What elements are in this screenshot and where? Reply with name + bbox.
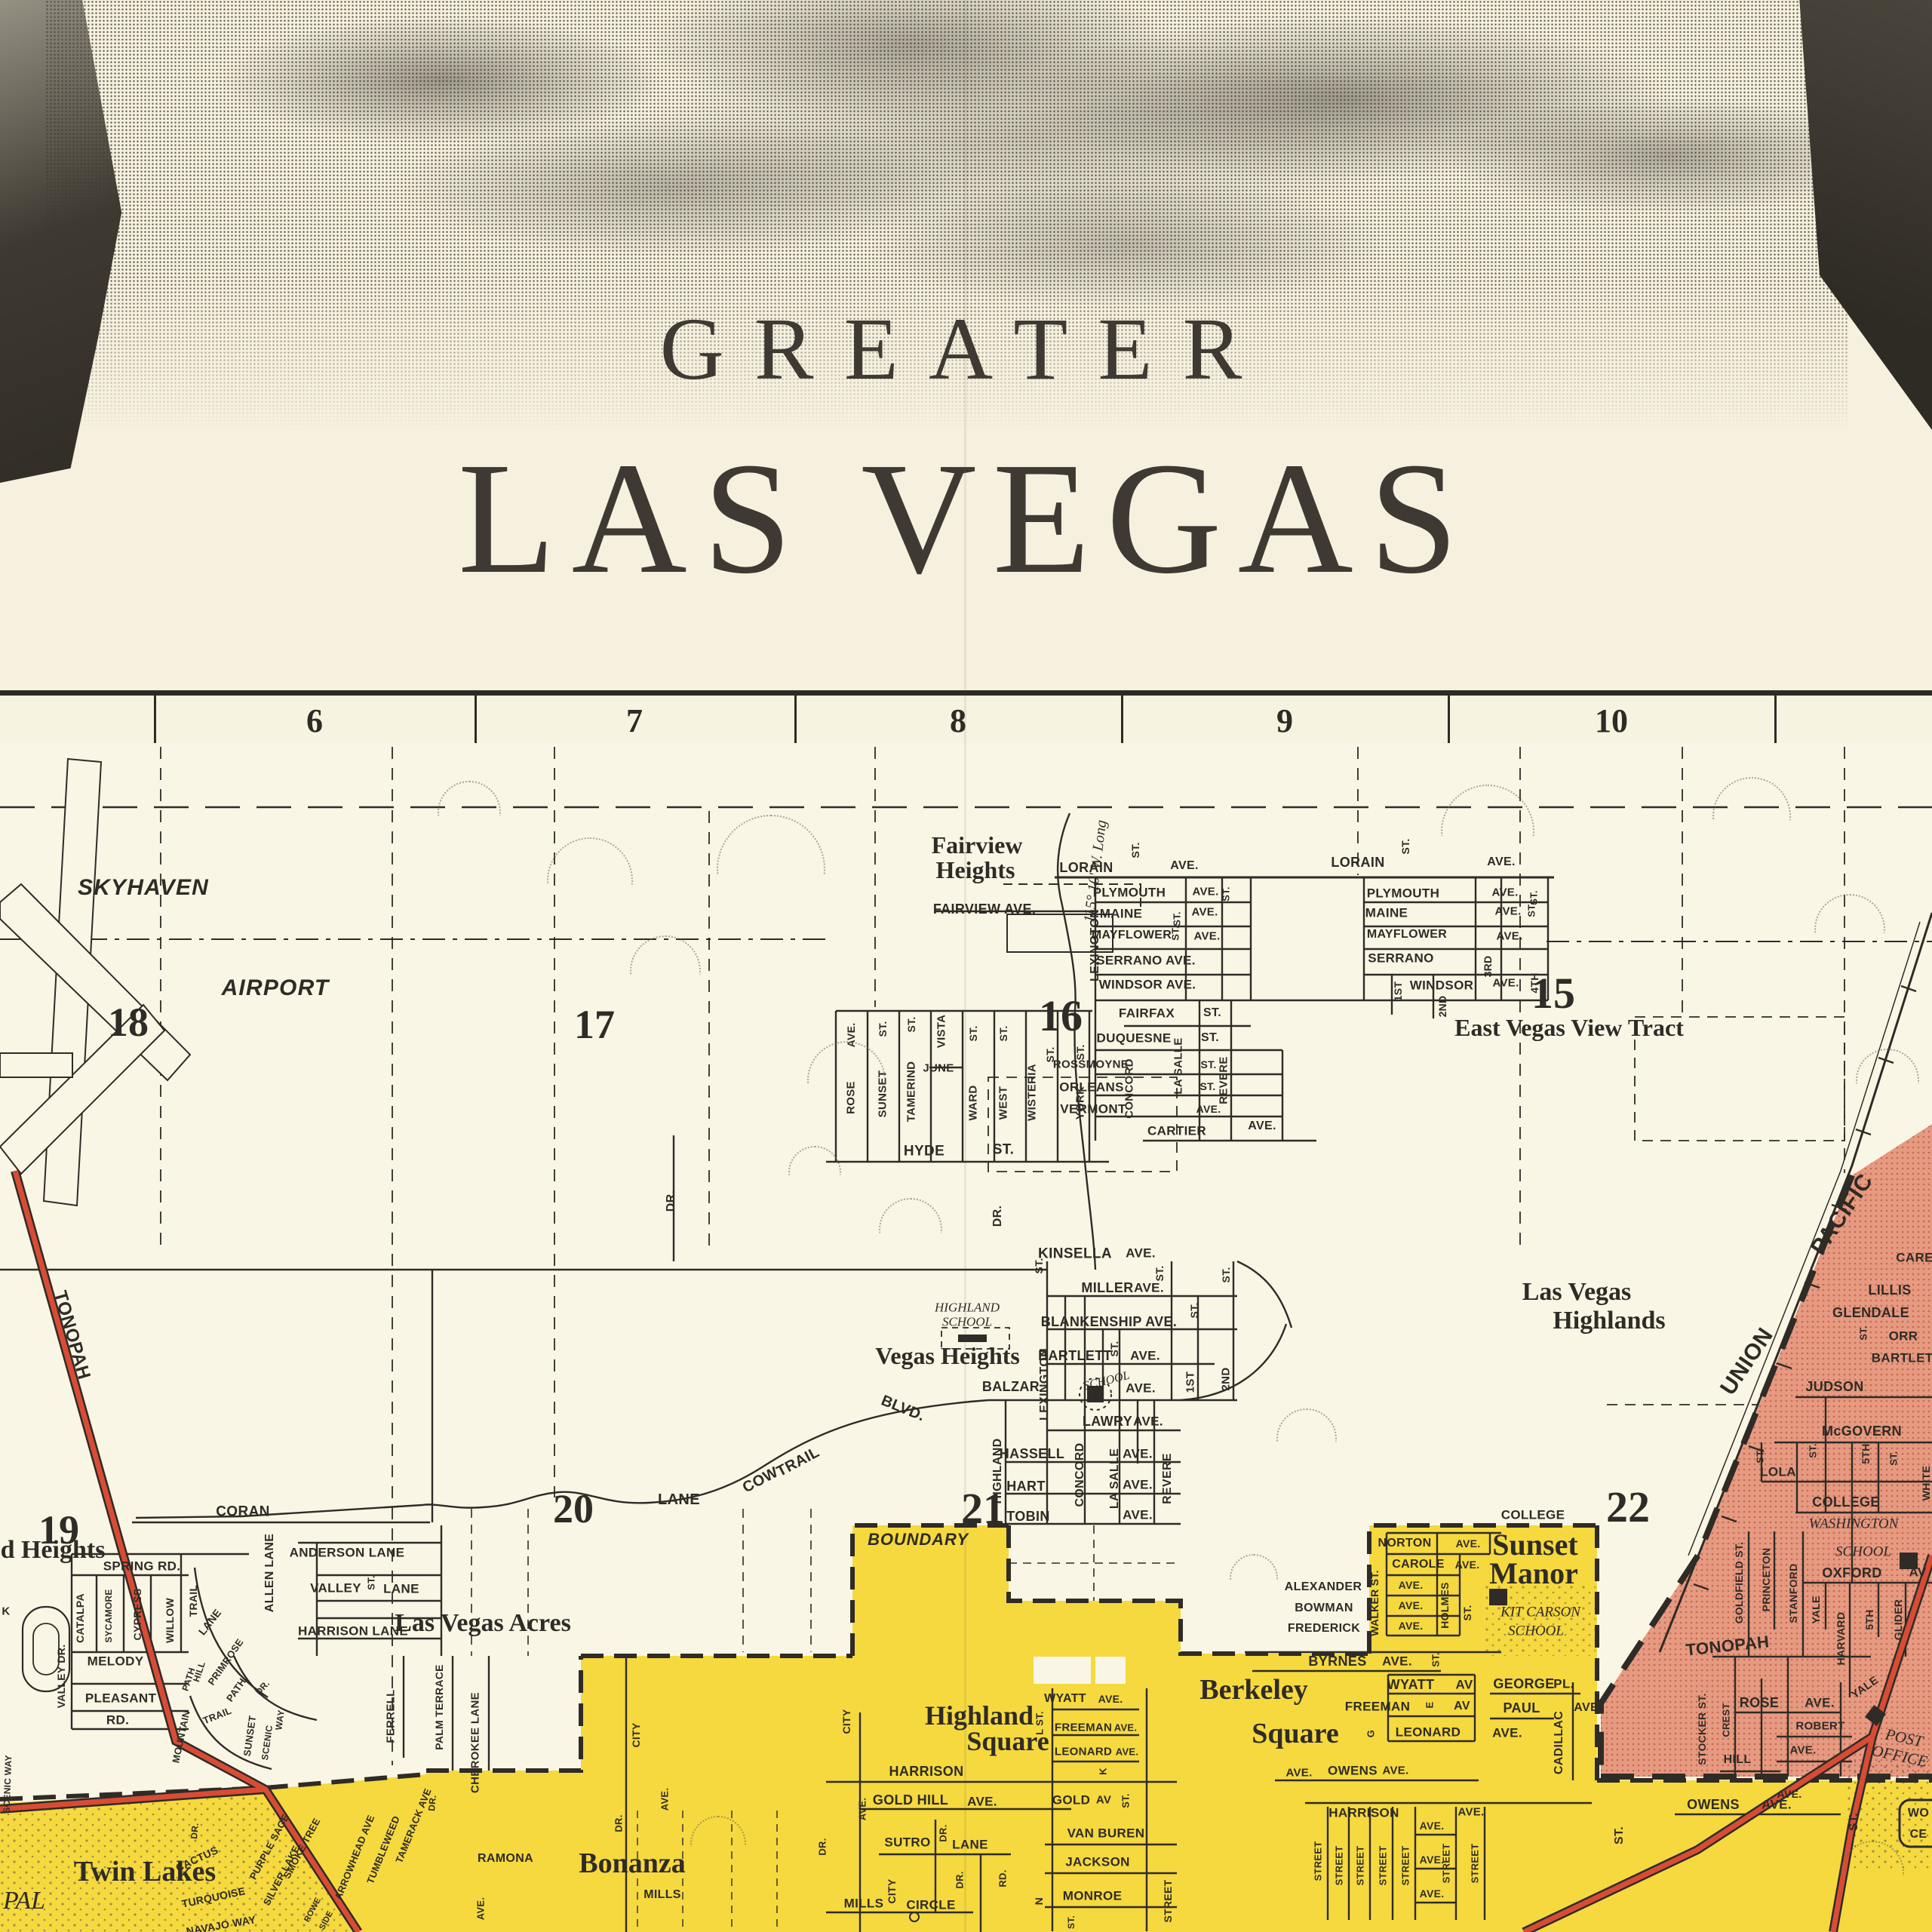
street-label: WYATT [1387, 1678, 1435, 1691]
street-label: AVE. [1123, 1448, 1153, 1461]
street-label: DR. [992, 1206, 1004, 1227]
area-label: Fairview [932, 833, 1023, 857]
ruler-tick [1121, 696, 1123, 748]
street-label: JACKSON [1065, 1856, 1130, 1869]
street-label: AVE. [1399, 1600, 1424, 1611]
street-label: STREET [1401, 1846, 1411, 1886]
street-label: ST. [1045, 1046, 1055, 1062]
street-label: FREEMAN [1055, 1722, 1112, 1734]
street-label: TRAIL [188, 1585, 198, 1617]
street-label: LANE [383, 1583, 419, 1596]
street-label: AV [1454, 1700, 1470, 1712]
street-label: MILLER [1081, 1281, 1133, 1295]
street-label: PRINCETON [1761, 1548, 1771, 1612]
ruler-number: 9 [1276, 702, 1293, 740]
street-label: AVE. [1123, 1509, 1153, 1522]
street-label: AVE. [1399, 1580, 1424, 1590]
street-label: COLLEGE [1501, 1509, 1565, 1522]
street-label: HILL [1724, 1754, 1752, 1766]
street-label: SUTRO [884, 1836, 930, 1849]
street-label: ST. [1189, 1302, 1199, 1318]
street-label: L ST. [1035, 1711, 1045, 1734]
street-label: ANDERSON LANE [290, 1547, 405, 1559]
street-label: CREST [1722, 1703, 1731, 1737]
street-label: 5TH [1864, 1609, 1875, 1629]
street-label: PALM TERRACE [434, 1664, 444, 1750]
street-label: CIRCLE [906, 1899, 955, 1912]
area-label: Highland [925, 1702, 1034, 1729]
street-label: ST. [998, 1025, 1009, 1041]
street-label: ST. [1171, 926, 1181, 941]
street-label: SPRING RD. [103, 1560, 181, 1573]
street-label: LORAIN [1059, 861, 1113, 874]
street-label: CARTIER [1147, 1125, 1206, 1138]
street-label: CONCORD [1074, 1443, 1086, 1507]
street-label: AVE. [1777, 1789, 1802, 1799]
street-label: AVE. [1420, 1820, 1445, 1831]
street-label: ST. [1109, 1341, 1120, 1356]
street-label: JUDSON [1805, 1380, 1863, 1393]
street-label: YORK [1075, 1086, 1086, 1120]
street-label: 4TH [1529, 972, 1540, 993]
street-label: AVE. [1805, 1697, 1835, 1709]
street-label: AVE. [1192, 886, 1218, 898]
street-label: ST. [906, 1016, 917, 1032]
street-label: HIGHLAND [992, 1439, 1004, 1504]
skyhaven-airport-runways [0, 759, 190, 1206]
street-label: ORR [1889, 1330, 1918, 1343]
street-label: ALLEN LANE [264, 1534, 276, 1613]
area-label: Las Vegas Acres [395, 1611, 571, 1636]
street-label: MAYFLOWER [1367, 929, 1447, 941]
street-label: GLENDALE [1832, 1306, 1909, 1319]
street-label: FERRELL [385, 1689, 397, 1743]
street-label: MILLS [844, 1897, 884, 1910]
street-label: VALLEY [310, 1582, 361, 1595]
street-label: DUQUESNE [1096, 1032, 1171, 1045]
street-label: ST. [1067, 1915, 1076, 1929]
street-label: KIT CARSON [1500, 1605, 1580, 1620]
area-label: Square [1252, 1719, 1338, 1748]
section-number: 20 [553, 1488, 594, 1529]
street-label: WINDSOR AVE. [1099, 978, 1196, 991]
ruler-tick [794, 696, 797, 748]
street-label: AVE. [1196, 1104, 1221, 1114]
street-label: BYRNES [1308, 1654, 1366, 1668]
street-label: ROBERT [1795, 1721, 1844, 1732]
street-label: LEXINGTON [1089, 909, 1101, 981]
street-label: AVE. [1114, 1723, 1137, 1733]
ruler-number: 7 [626, 702, 643, 740]
street-label: ST. [1203, 1007, 1221, 1019]
street-label: HIGHLAND [935, 1301, 1000, 1314]
street-label: AVE. [1123, 1479, 1153, 1491]
street-label: LA SALLE [1109, 1448, 1121, 1509]
street-label: ST. [1121, 1793, 1131, 1808]
street-label: LEXINGTON [1039, 1348, 1051, 1421]
street-label: ST. [1075, 1044, 1086, 1060]
street-label: HYDE [904, 1144, 944, 1159]
street-label: N [1034, 1897, 1044, 1905]
area-label: d Heights [1, 1537, 106, 1563]
street-label: AVE. [1456, 1538, 1481, 1549]
street-label: ORLEANS [1059, 1081, 1124, 1094]
street-label: ST. [968, 1025, 978, 1041]
street-label: LEONARD [1055, 1746, 1112, 1758]
street-label: E [1425, 1702, 1435, 1709]
street-label: WISTERIA [1027, 1064, 1038, 1121]
street-label: GOLD HILL [873, 1793, 948, 1807]
street-label: ST. [1755, 1448, 1765, 1464]
white-inset [1034, 1657, 1091, 1684]
street-label: PAUL [1503, 1701, 1540, 1715]
street-label: OXFORD [1822, 1566, 1881, 1580]
street-label: RD. [106, 1714, 129, 1727]
street-label: G [1366, 1730, 1376, 1737]
street-label: MILLS [643, 1889, 681, 1901]
street-label: AVE. [1789, 1745, 1816, 1756]
street-label: CITY [631, 1722, 641, 1747]
street-label: WAY [274, 1709, 286, 1731]
street-label: ST. [1034, 1258, 1044, 1273]
street-label: HASSELL [1000, 1447, 1065, 1461]
street-label: CORAN [216, 1505, 270, 1519]
street-label: SCENIC WAY [2, 1755, 14, 1814]
street-label: 1ST [1185, 1371, 1196, 1393]
street-label: WARD [968, 1085, 979, 1120]
section-number: 18 [108, 1002, 149, 1043]
street-label: McGOVERN [1822, 1424, 1902, 1438]
street-label: STREET [1163, 1880, 1173, 1923]
street-label: MELODY [88, 1655, 144, 1668]
street-label: VALLEY DR. [56, 1645, 66, 1709]
street-label: CONCORD [1124, 1058, 1135, 1119]
street-label: RD. [998, 1869, 1008, 1887]
area-label: Bonanza [579, 1849, 685, 1878]
street-label: WEST [998, 1086, 1009, 1120]
street-label: 1ST [1393, 981, 1403, 1002]
street-label: YALE [1811, 1596, 1821, 1623]
street-label: BLANKENSHIP AVE. [1041, 1315, 1177, 1328]
street-label: WILLOW [164, 1598, 175, 1643]
street-label: HARRISON LANE [298, 1625, 408, 1638]
section-number: 22 [1606, 1485, 1650, 1529]
area-label: Highlands [1553, 1308, 1665, 1334]
street-label: AVE. [967, 1795, 997, 1808]
street-label: AVE. [1116, 1747, 1138, 1757]
ruler-tick [1448, 696, 1450, 748]
street-label: REVERE [1162, 1453, 1174, 1504]
street-label: AVE. [1492, 1727, 1522, 1740]
street-label: OWENS [1328, 1765, 1378, 1777]
street-label: LILLIS [1868, 1283, 1911, 1297]
street-label: SCHOOL [942, 1316, 992, 1328]
street-label: AVE. [1455, 1559, 1480, 1570]
street-label: FAIRVIEW AVE. [933, 902, 1036, 916]
street-label: WYATT [1044, 1693, 1086, 1705]
street-label: MAINE [1100, 908, 1142, 920]
street-label: ROSE [1740, 1696, 1779, 1709]
street-label: BOWMAN [1295, 1602, 1353, 1614]
area-label: Sunset [1492, 1530, 1577, 1560]
street-label: MAINE [1365, 907, 1408, 920]
street-label: CYPRESS [132, 1589, 143, 1641]
street-label: AVE. [1762, 1798, 1792, 1811]
section-number: 16 [1039, 994, 1083, 1038]
street-label: HARRISON [889, 1765, 964, 1778]
street-label: JUNE [923, 1063, 954, 1074]
area-label: Berkeley [1199, 1676, 1308, 1704]
street-label: COLLEGE [1812, 1495, 1880, 1509]
street-label: K [2, 1606, 10, 1617]
street-label: AVE. [1382, 1765, 1408, 1777]
street-label: HART [1006, 1479, 1045, 1493]
street-label: STREET [1335, 1846, 1344, 1886]
street-label: 2ND [1221, 1368, 1232, 1391]
street-label: AVE. [1126, 1247, 1156, 1260]
street-label: SERRANO AVE. [1096, 954, 1196, 967]
street-label: SYCAMORE [104, 1589, 113, 1642]
fold-line [964, 0, 966, 1932]
street-label: ST. [877, 1021, 888, 1037]
street-label: ST. [1199, 1081, 1215, 1092]
street-label: AV [1909, 1566, 1926, 1579]
street-label: ST. [1172, 911, 1182, 926]
street-label: SCHOOL [1835, 1545, 1891, 1559]
street-label: DR. [614, 1814, 624, 1832]
street-label: GOLD [1052, 1794, 1090, 1807]
street-label: TOBIN [1006, 1510, 1049, 1523]
street-label: LANE [658, 1492, 700, 1507]
street-label: AVE. [1191, 907, 1218, 918]
street-label: WALKER ST. [1369, 1570, 1380, 1636]
street-label: VISTA [936, 1015, 948, 1049]
street-label: AVE. [476, 1897, 486, 1920]
section-number: 17 [574, 1004, 615, 1045]
street-label: CITY [886, 1878, 897, 1903]
street-label: VAN BUREN [1067, 1827, 1145, 1840]
street-label: ST. [1221, 886, 1231, 901]
street-label: SKYHAVEN [78, 877, 209, 899]
street-label: K [1098, 1768, 1108, 1775]
street-label: ROSE [846, 1081, 857, 1114]
street-label: TAMERIND [906, 1061, 917, 1122]
street-label: AVE. [1285, 1768, 1312, 1779]
street-label: ST. [1462, 1605, 1473, 1620]
street-label: WINDSOR [1410, 979, 1474, 992]
area-label: Heights [936, 858, 1015, 882]
street-label: ST. [1200, 1059, 1216, 1070]
area-label: Vegas Heights [875, 1344, 1020, 1368]
street-label: FREEMAN [1345, 1700, 1410, 1713]
street-label: LA SALLE [1173, 1037, 1184, 1094]
street-label: 3RD [1482, 956, 1493, 978]
street-label: ST. [1400, 838, 1411, 854]
street-label: SERRANO [1368, 952, 1433, 965]
street-label: LAWRY [1083, 1414, 1132, 1428]
street-label: AVE. [1496, 931, 1522, 942]
street-label: STREET [1356, 1846, 1365, 1886]
street-label: AVE. [1193, 931, 1220, 942]
street-label: LEONARD [1396, 1726, 1461, 1739]
street-label: DR. [665, 1190, 677, 1212]
street-label: ST. [1130, 842, 1141, 858]
street-label: AVE. [1248, 1120, 1276, 1132]
street-label: LOLA [1760, 1466, 1796, 1479]
street-label: ST. [993, 1143, 1015, 1157]
street-label: CARE [1896, 1252, 1932, 1264]
ruler-number: 6 [306, 702, 323, 740]
street-label: ST. [1527, 902, 1537, 917]
street-label: CE [1910, 1829, 1927, 1841]
street-label: AVE. [660, 1788, 670, 1811]
street-label: AVE. [1457, 1807, 1484, 1818]
street-label: HARVARD [1835, 1612, 1846, 1666]
street-label: AVE. [1382, 1655, 1412, 1668]
white-inset [1095, 1657, 1126, 1684]
street-label: HOLMES [1439, 1582, 1450, 1629]
street-label: PAL [3, 1888, 45, 1914]
street-label: 2ND [1437, 996, 1448, 1018]
street-label: WASHINGTON [1809, 1517, 1899, 1531]
street-label: AV [1096, 1795, 1111, 1806]
street-label: ALEXANDER [1285, 1581, 1362, 1593]
street-label: PLEASANT [85, 1692, 156, 1705]
street-label: KINSELLA [1038, 1247, 1112, 1261]
street-label: HARRISON [1328, 1807, 1399, 1820]
street-label: PL. [1553, 1678, 1574, 1691]
area-label: Las Vegas [1522, 1279, 1632, 1305]
street-label: DR. [818, 1838, 828, 1855]
street-label: WO [1908, 1808, 1929, 1820]
area-label: East Vegas View Tract [1454, 1015, 1684, 1040]
ruler-tick [1774, 696, 1777, 748]
street-label: VERMONT [1060, 1103, 1126, 1116]
street-label: ST. [1848, 1813, 1860, 1831]
street-label: SCHOOL [1508, 1624, 1564, 1639]
street-label: ST. [367, 1575, 376, 1590]
ruler-tick [154, 696, 156, 748]
street-label: LORAIN [1331, 855, 1384, 869]
street-label: AVE. [1134, 1282, 1164, 1295]
street-label: ST. [1614, 1826, 1626, 1844]
street-label: ROSSMOYNE [1053, 1059, 1129, 1070]
street-label: AVE. [1098, 1694, 1123, 1704]
street-label: STOCKER ST. [1697, 1693, 1707, 1765]
street-label: AVE. [1492, 978, 1519, 989]
street-label: AVE. [1487, 856, 1515, 868]
street-label: STANFORD [1788, 1564, 1798, 1623]
street-label: FREDERICK [1288, 1623, 1360, 1635]
map-sheet: GREATER LAS VEGAS 678910 [0, 0, 1932, 1932]
street-label: AVE. [1126, 1382, 1156, 1395]
street-label: AVE. [1420, 1854, 1445, 1865]
street-label: AVE. [1491, 887, 1518, 898]
street-label: WHITE [1921, 1466, 1931, 1501]
street-label: AVE. [1420, 1888, 1445, 1899]
street-label: 5TH [1860, 1443, 1871, 1464]
street-label: AV [1455, 1679, 1473, 1691]
street-label: PLYMOUTH [1093, 886, 1166, 899]
street-label: ST. [1154, 1265, 1165, 1281]
street-label: ST. [1859, 1325, 1869, 1341]
street-label: AIRPORT [222, 977, 330, 1000]
street-label: DR. [427, 1795, 438, 1811]
street-label: MAYFLOWER [1092, 929, 1172, 941]
street-label: ST. [1889, 1451, 1899, 1466]
area-label: Manor [1489, 1559, 1578, 1589]
street-label: MONROE [1063, 1890, 1123, 1903]
street-label: RAMONA [478, 1853, 533, 1865]
street-label: ST. [1221, 1267, 1231, 1282]
region-salmon [1601, 1124, 1932, 1777]
street-label: GEORGE [1493, 1677, 1554, 1691]
street-label: STREET [1378, 1846, 1388, 1886]
street-label: AVE. [1494, 906, 1521, 917]
street-label: FAIRFAX [1119, 1007, 1175, 1020]
street-label: OWENS [1687, 1798, 1740, 1811]
street-label: CHEROKEE LANE [470, 1692, 481, 1793]
street-label: CADILLAC [1553, 1711, 1565, 1774]
street-label: ST. [1808, 1443, 1818, 1458]
street-label: AVE. [1170, 860, 1198, 872]
street-label: BARTLETT [1872, 1352, 1932, 1365]
street-label: REVERE [1218, 1056, 1230, 1104]
street-label: GOLDFIELD ST. [1734, 1542, 1744, 1624]
street-label: PLYMOUTH [1367, 887, 1440, 900]
street-label: GLIDER [1893, 1599, 1903, 1641]
street-label: STREET [1470, 1844, 1480, 1884]
street-label: LANE [952, 1838, 988, 1851]
street-label: CITY [841, 1709, 852, 1734]
street-label: DR. [955, 1871, 965, 1888]
street-label: BALZAR [982, 1380, 1040, 1393]
street-label: ST. [1201, 1032, 1219, 1044]
street-label: CAROLE [1392, 1559, 1444, 1571]
street-label: DR. [938, 1824, 948, 1841]
ruler-tick [475, 696, 477, 748]
street-label: AVE. [858, 1798, 868, 1820]
street-label: AVE. [1574, 1702, 1602, 1714]
street-label: NORTON [1378, 1537, 1432, 1550]
street-label: AVE. [1399, 1620, 1424, 1631]
street-label: CATALPA [75, 1593, 85, 1643]
street-label: STREET [1313, 1841, 1323, 1881]
street-label: AVE. [1133, 1415, 1163, 1428]
street-label: ST. [1431, 1652, 1441, 1667]
street-label: AVE. [1130, 1350, 1160, 1362]
street-label: DR. [189, 1823, 200, 1839]
street-label: BOUNDARY [868, 1531, 969, 1548]
ruler-number: 10 [1595, 702, 1628, 740]
